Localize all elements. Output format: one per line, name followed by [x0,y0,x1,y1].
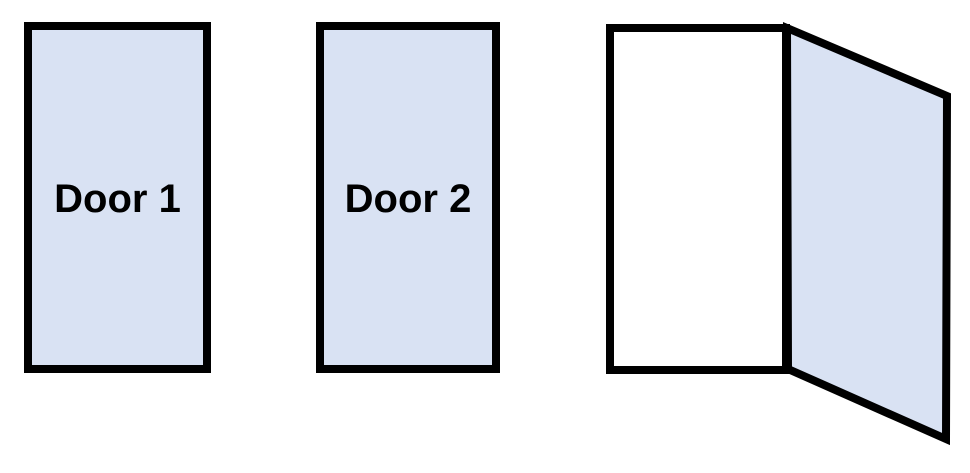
door-1-label: Door 1 [54,177,181,221]
door-3-frame [610,28,786,370]
door-2-label: Door 2 [345,177,472,221]
door-2: Door 2 [320,26,496,369]
door-3-open [610,28,947,439]
doors-diagram: Door 1 Door 2 [0,0,970,473]
door-1: Door 1 [28,26,207,369]
doors-diagram-svg: Door 1 Door 2 [0,0,970,473]
door-3-open-panel [787,28,947,439]
